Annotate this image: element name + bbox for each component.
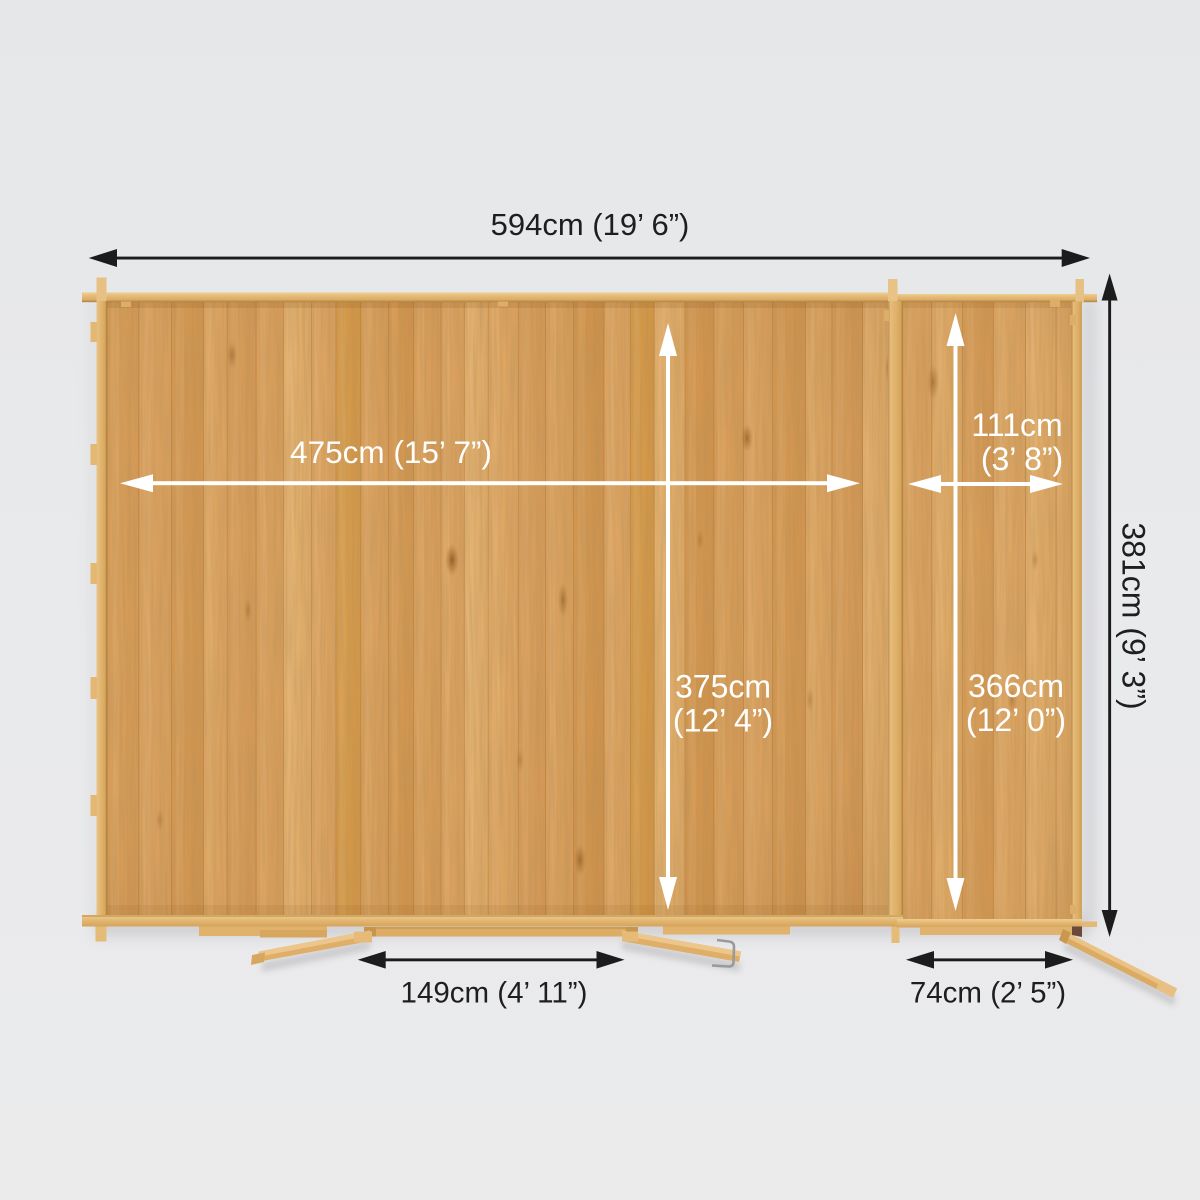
svg-text:375cm: 375cm	[675, 669, 771, 705]
svg-text:366cm: 366cm	[968, 668, 1064, 704]
svg-text:(12’ 4”): (12’ 4”)	[673, 703, 773, 739]
svg-text:74cm (2’ 5”): 74cm (2’ 5”)	[910, 977, 1066, 1010]
svg-text:381cm (9’ 3”): 381cm (9’ 3”)	[1116, 522, 1152, 709]
svg-text:(12’ 0”): (12’ 0”)	[966, 702, 1066, 738]
svg-text:(3’ 8”): (3’ 8”)	[981, 441, 1063, 477]
svg-text:475cm (15’ 7”): 475cm (15’ 7”)	[290, 434, 492, 470]
svg-text:594cm (19’ 6”): 594cm (19’ 6”)	[491, 207, 690, 242]
svg-text:111cm: 111cm	[971, 407, 1062, 443]
svg-text:149cm (4’ 11”): 149cm (4’ 11”)	[401, 977, 588, 1010]
